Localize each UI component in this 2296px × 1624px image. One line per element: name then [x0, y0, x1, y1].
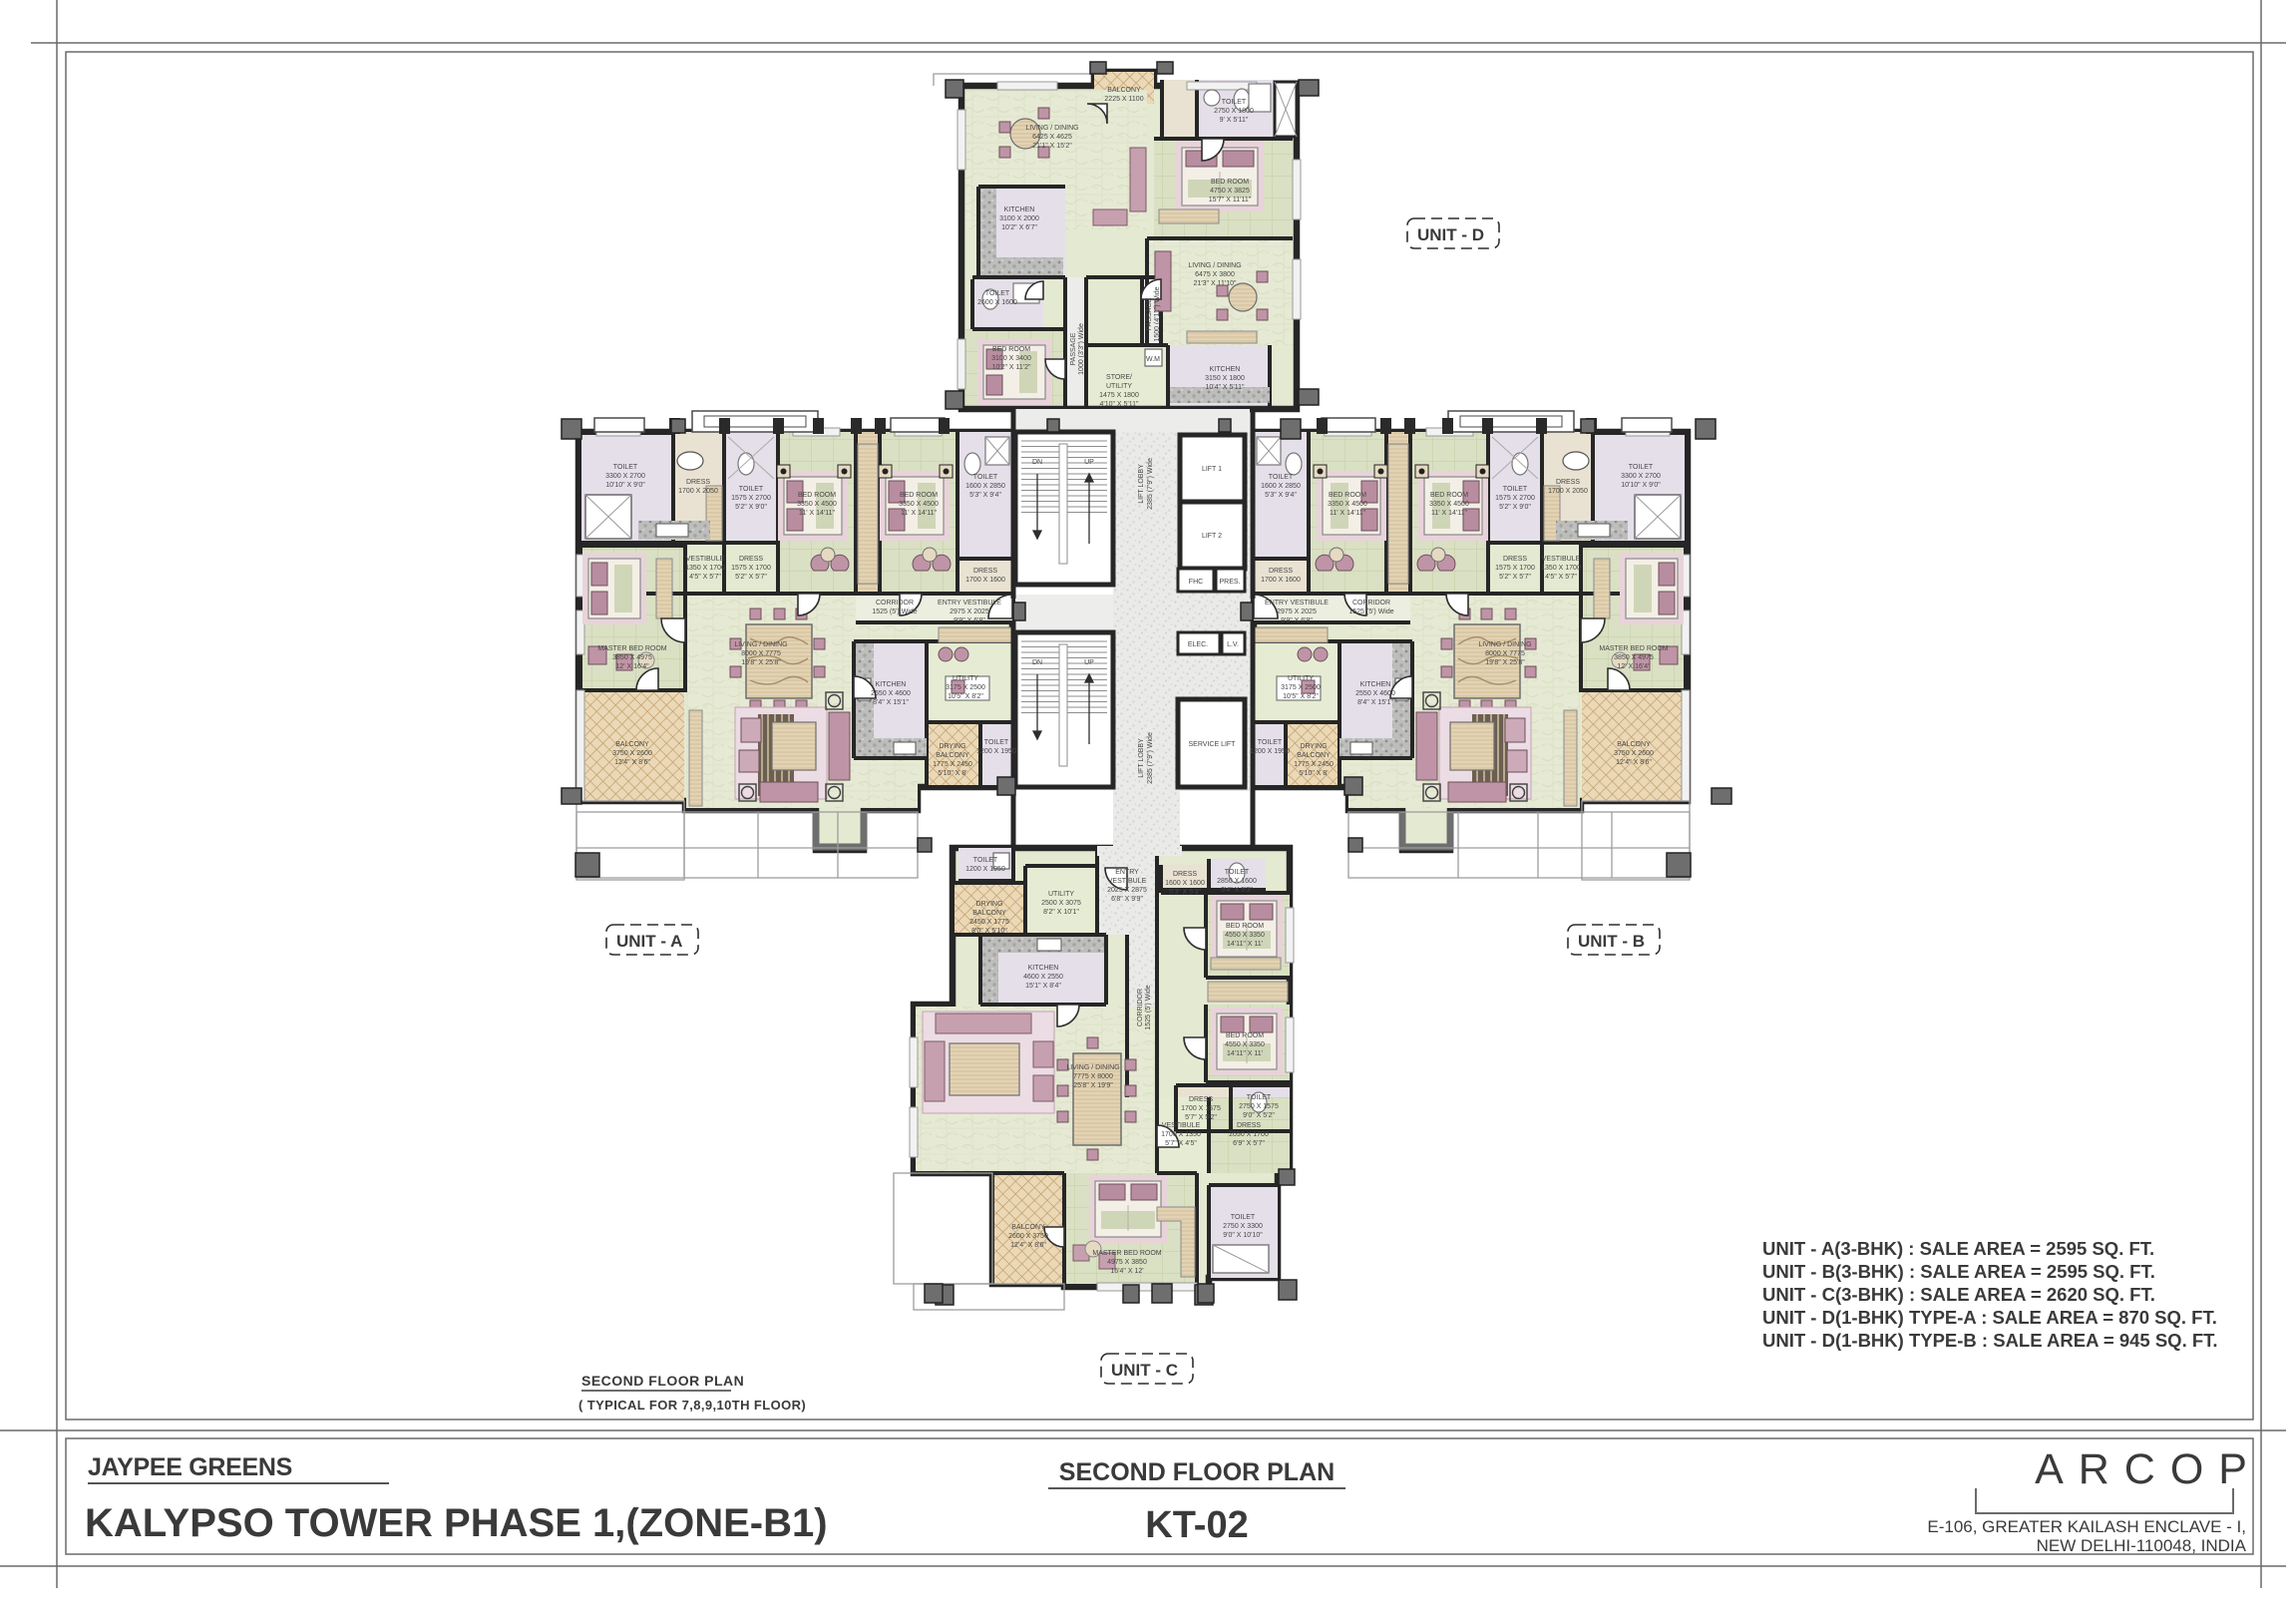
svg-text:UNIT - A: UNIT - A [616, 932, 682, 951]
svg-text:SECOND FLOOR PLAN: SECOND FLOOR PLAN [581, 1373, 744, 1389]
svg-text:PRES.: PRES. [1219, 579, 1240, 586]
svg-text:BED ROOM4550 X 335014'11" X 11: BED ROOM4550 X 335014'11" X 11' [1225, 923, 1265, 948]
svg-text:JAYPEE GREENS: JAYPEE GREENS [88, 1453, 292, 1481]
svg-text:UNIT - D: UNIT - D [1417, 225, 1484, 244]
svg-text:BED ROOM4550 X 335014'11" X 11: BED ROOM4550 X 335014'11" X 11' [1225, 1032, 1265, 1057]
svg-text:LIFT 2: LIFT 2 [1202, 533, 1222, 540]
svg-text:UNIT - C(3-BHK) : SALE AREA =: UNIT - C(3-BHK) : SALE AREA = 2620 SQ. F… [1762, 1284, 2155, 1305]
svg-text:UP: UP [1084, 659, 1094, 666]
svg-text:KT-02: KT-02 [1145, 1504, 1248, 1546]
svg-text:W.M: W.M [1146, 356, 1160, 363]
svg-text:UNIT - D(1-BHK) TYPE-A : SALE: UNIT - D(1-BHK) TYPE-A : SALE AREA = 870… [1762, 1307, 2217, 1328]
svg-text:KITCHEN3150 X 180010'4" X 5'11: KITCHEN3150 X 180010'4" X 5'11" [1205, 366, 1245, 391]
svg-text:BED ROOM3350 X 450011' X 14'11: BED ROOM3350 X 450011' X 14'11" [1429, 492, 1469, 517]
svg-text:UNIT - C: UNIT - C [1111, 1361, 1178, 1380]
svg-text:LIFT 1: LIFT 1 [1202, 466, 1222, 473]
svg-text:LIVING / DINING6475 X 380021'3: LIVING / DINING6475 X 380021'3" X 11'10" [1188, 262, 1241, 287]
svg-text:KITCHEN3100 X 200010'2" X 6'7": KITCHEN3100 X 200010'2" X 6'7" [999, 206, 1039, 231]
svg-text:KALYPSO TOWER PHASE 1,(ZONE-B1: KALYPSO TOWER PHASE 1,(ZONE-B1) [85, 1501, 828, 1545]
svg-text:BED ROOM3350 X 450011' X 14'11: BED ROOM3350 X 450011' X 14'11" [899, 492, 939, 517]
svg-text:NEW DELHI-110048, INDIA: NEW DELHI-110048, INDIA [2037, 1536, 2247, 1555]
svg-text:BED ROOM3350 X 450011' X 14'11: BED ROOM3350 X 450011' X 14'11" [1328, 492, 1367, 517]
svg-text:( TYPICAL FOR 7,8,9,10TH FLOOR: ( TYPICAL FOR 7,8,9,10TH FLOOR) [578, 1398, 806, 1413]
svg-text:LIVING / DINING8000 X 777519'8: LIVING / DINING8000 X 777519'8" X 25'8" [1478, 641, 1531, 666]
svg-text:BALCONY2600 X 375012'4" X 8'6": BALCONY2600 X 375012'4" X 8'6" [1008, 1224, 1048, 1249]
svg-text:SERVICE LIFT: SERVICE LIFT [1189, 741, 1237, 748]
svg-text:KITCHEN2550 X 46008'4" X 15'1": KITCHEN2550 X 46008'4" X 15'1" [1355, 681, 1395, 706]
svg-text:E-106, GREATER KAILASH ENCLAVE: E-106, GREATER KAILASH ENCLAVE - I, [1927, 1517, 2246, 1536]
svg-text:BALCONY3750 X 260012'4" X 8'6": BALCONY3750 X 260012'4" X 8'6" [1614, 741, 1654, 766]
svg-text:DN: DN [1032, 659, 1042, 666]
svg-text:BED ROOM3350 X 450011' X 14'11: BED ROOM3350 X 450011' X 14'11" [797, 492, 837, 517]
svg-text:DN: DN [1032, 459, 1042, 466]
svg-text:VESTIBULE1350 X 17004'5" X 5'7: VESTIBULE1350 X 17004'5" X 5'7" [685, 556, 725, 581]
svg-text:SECOND FLOOR PLAN: SECOND FLOOR PLAN [1059, 1458, 1335, 1486]
svg-text:L.V.: L.V. [1227, 641, 1239, 648]
svg-text:VESTIBULE1350 X 17004'5" X 5'7: VESTIBULE1350 X 17004'5" X 5'7" [1541, 556, 1581, 581]
svg-text:UNIT - D(1-BHK) TYPE-B : SALE: UNIT - D(1-BHK) TYPE-B : SALE AREA = 945… [1762, 1330, 2218, 1351]
svg-text:UNIT - B(3-BHK) : SALE AREA =: UNIT - B(3-BHK) : SALE AREA = 2595 SQ. F… [1762, 1261, 2155, 1282]
svg-text:ARCOP: ARCOP [2035, 1445, 2262, 1493]
svg-text:LIVING / DINING6425 X 462521'1: LIVING / DINING6425 X 462521'1" X 15'2" [1025, 125, 1078, 150]
svg-text:FHC: FHC [1189, 579, 1203, 586]
svg-text:BED ROOM3100 X 340010'2" X 11': BED ROOM3100 X 340010'2" X 11'2" [991, 346, 1031, 371]
svg-text:KITCHEN4600 X 255015'1" X 8'4": KITCHEN4600 X 255015'1" X 8'4" [1023, 965, 1063, 990]
svg-text:LIVING / DINING7775 X 800025'8: LIVING / DINING7775 X 800025'8" X 19'9" [1066, 1064, 1119, 1089]
svg-text:LIVING / DINING8000 X 777519'8: LIVING / DINING8000 X 777519'8" X 25'8" [734, 641, 787, 666]
svg-text:UNIT - A(3-BHK) : SALE AREA =: UNIT - A(3-BHK) : SALE AREA = 2595 SQ. F… [1762, 1238, 2154, 1259]
svg-text:KITCHEN2550 X 46008'4" X 15'1": KITCHEN2550 X 46008'4" X 15'1" [871, 681, 911, 706]
svg-text:ELEC.: ELEC. [1188, 641, 1208, 648]
svg-text:CORRIDOR1525 (5') Wide: CORRIDOR1525 (5') Wide [1137, 985, 1152, 1029]
svg-text:BALCONY3750 X 260012'4" X 8'6": BALCONY3750 X 260012'4" X 8'6" [612, 741, 652, 766]
svg-text:BED ROOM4750 X 382515'7" X 11': BED ROOM4750 X 382515'7" X 11'11" [1209, 179, 1252, 203]
svg-text:UNIT - B: UNIT - B [1578, 932, 1645, 951]
svg-text:UP: UP [1084, 459, 1094, 466]
svg-text:VESTIBULE1700 X 13505'7" X 4'5: VESTIBULE1700 X 13505'7" X 4'5" [1161, 1122, 1201, 1147]
